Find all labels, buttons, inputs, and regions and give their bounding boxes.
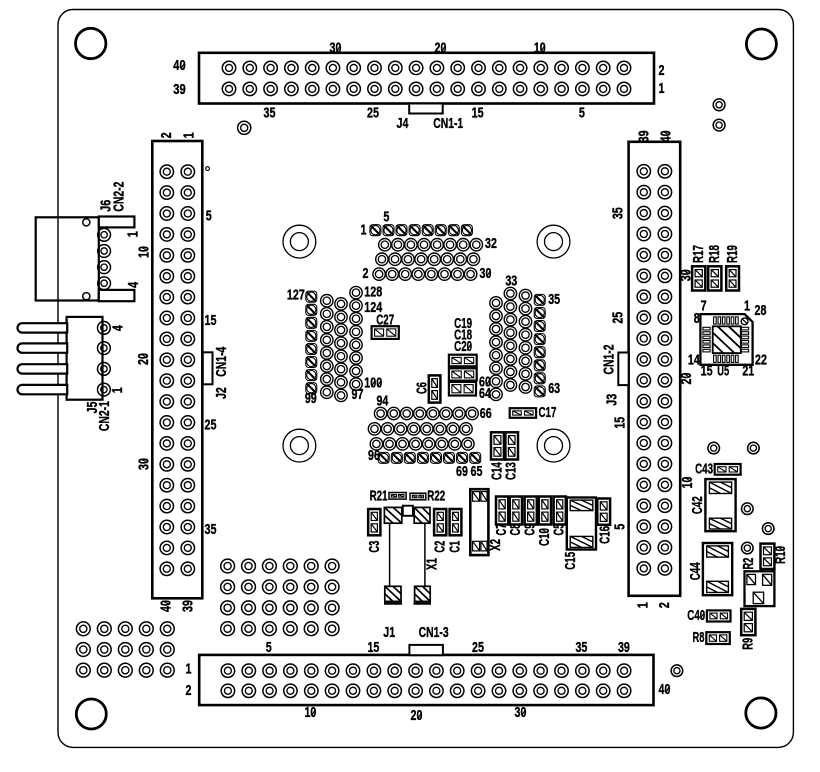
svg-text:21: 21 — [742, 363, 754, 379]
svg-text:39: 39 — [181, 600, 197, 612]
svg-text:39: 39 — [618, 640, 630, 656]
svg-text:10: 10 — [534, 41, 546, 57]
svg-text:5: 5 — [266, 640, 272, 656]
svg-text:66: 66 — [480, 406, 492, 422]
svg-text:25: 25 — [367, 106, 379, 122]
svg-text:128: 128 — [364, 285, 382, 301]
svg-text:25: 25 — [205, 417, 217, 433]
svg-text:15: 15 — [613, 417, 629, 429]
svg-text:R18: R18 — [707, 245, 723, 263]
svg-text:R8: R8 — [693, 630, 705, 646]
svg-text:22: 22 — [755, 353, 767, 369]
svg-text:1: 1 — [361, 223, 367, 239]
svg-text:20: 20 — [136, 353, 152, 365]
svg-text:5: 5 — [206, 208, 212, 224]
svg-text:C5: C5 — [552, 524, 568, 536]
svg-text:C3: C3 — [367, 541, 383, 553]
svg-text:33: 33 — [505, 273, 517, 289]
svg-text:C43: C43 — [695, 461, 713, 477]
svg-text:30: 30 — [137, 458, 153, 470]
svg-text:C42: C42 — [690, 496, 706, 514]
svg-text:C44: C44 — [688, 562, 704, 580]
svg-text:96: 96 — [368, 448, 380, 464]
svg-text:4: 4 — [110, 325, 126, 331]
svg-text:35: 35 — [548, 292, 560, 308]
svg-text:J1: J1 — [383, 625, 395, 641]
svg-text:35: 35 — [205, 522, 217, 538]
svg-text:C8: C8 — [508, 524, 524, 536]
svg-text:15: 15 — [472, 106, 484, 122]
svg-text:1: 1 — [186, 662, 192, 678]
svg-text:C1: C1 — [447, 541, 463, 553]
svg-text:28: 28 — [755, 303, 767, 319]
svg-text:30: 30 — [515, 705, 527, 721]
svg-text:J3: J3 — [604, 394, 620, 406]
svg-text:CN1-2: CN1-2 — [601, 345, 617, 375]
svg-text:30: 30 — [330, 41, 342, 57]
svg-text:35: 35 — [264, 106, 276, 122]
svg-text:25: 25 — [611, 312, 627, 324]
svg-text:15: 15 — [367, 640, 379, 656]
svg-text:X1: X1 — [425, 558, 441, 570]
svg-text:1: 1 — [126, 231, 142, 237]
svg-text:20: 20 — [679, 373, 695, 385]
svg-text:1: 1 — [636, 602, 652, 608]
svg-text:15: 15 — [701, 363, 713, 379]
svg-text:5: 5 — [613, 524, 629, 530]
svg-text:99: 99 — [305, 391, 317, 407]
svg-text:97: 97 — [352, 387, 364, 403]
svg-text:127: 127 — [287, 287, 305, 303]
svg-text:CN1-1: CN1-1 — [433, 116, 463, 132]
svg-text:R17: R17 — [691, 245, 707, 263]
svg-text:39: 39 — [636, 130, 652, 142]
svg-text:CN1-4: CN1-4 — [214, 347, 230, 377]
svg-text:4: 4 — [126, 282, 142, 288]
svg-text:1: 1 — [110, 387, 126, 393]
svg-text:25: 25 — [472, 640, 484, 656]
svg-text:C16: C16 — [597, 526, 613, 544]
svg-text:C27: C27 — [376, 313, 394, 329]
svg-text:14: 14 — [688, 353, 700, 369]
svg-text:40: 40 — [173, 58, 185, 74]
svg-text:32: 32 — [485, 236, 497, 252]
svg-text:C17: C17 — [539, 405, 557, 421]
svg-text:C13: C13 — [504, 462, 520, 480]
svg-text:94: 94 — [376, 394, 388, 410]
svg-text:J2: J2 — [214, 387, 230, 399]
svg-text:39: 39 — [173, 82, 185, 98]
svg-text:C6: C6 — [414, 382, 430, 394]
svg-text:69: 69 — [456, 464, 468, 480]
svg-text:R9: R9 — [741, 638, 757, 650]
svg-text:40: 40 — [659, 130, 675, 142]
svg-text:35: 35 — [611, 207, 627, 219]
svg-text:R2: R2 — [741, 558, 757, 570]
svg-text:35: 35 — [575, 640, 587, 656]
svg-text:1: 1 — [659, 81, 665, 97]
svg-text:R21: R21 — [370, 488, 388, 504]
svg-text:7: 7 — [701, 299, 707, 315]
svg-text:2: 2 — [186, 683, 192, 699]
svg-text:X2: X2 — [488, 539, 504, 551]
svg-text:5: 5 — [383, 210, 389, 226]
svg-text:40: 40 — [159, 600, 175, 612]
svg-text:15: 15 — [205, 313, 217, 329]
svg-text:CN1-3: CN1-3 — [419, 625, 449, 641]
svg-text:U5: U5 — [717, 363, 729, 379]
svg-text:40: 40 — [659, 682, 671, 698]
svg-text:C15: C15 — [563, 552, 579, 570]
svg-text:8: 8 — [694, 311, 700, 327]
svg-text:5: 5 — [579, 106, 585, 122]
svg-text:R19: R19 — [725, 245, 741, 263]
svg-text:10: 10 — [304, 705, 316, 721]
svg-text:C2: C2 — [432, 541, 448, 553]
svg-text:2: 2 — [659, 63, 665, 79]
svg-text:CN2-2: CN2-2 — [112, 182, 128, 212]
svg-text:2: 2 — [159, 132, 175, 138]
svg-text:64: 64 — [479, 386, 491, 402]
svg-text:10: 10 — [680, 477, 696, 489]
svg-text:10: 10 — [137, 246, 153, 258]
svg-text:1: 1 — [182, 132, 198, 138]
svg-text:20: 20 — [435, 41, 447, 57]
svg-text:63: 63 — [548, 381, 560, 397]
svg-text:R22: R22 — [427, 488, 445, 504]
svg-text:65: 65 — [471, 464, 483, 480]
svg-text:J4: J4 — [397, 116, 409, 132]
svg-text:30: 30 — [480, 266, 492, 282]
svg-text:20: 20 — [411, 708, 423, 724]
svg-text:2: 2 — [657, 602, 673, 608]
svg-text:CN2-1: CN2-1 — [97, 401, 113, 431]
svg-text:1: 1 — [744, 299, 750, 315]
svg-text:2: 2 — [363, 266, 369, 282]
